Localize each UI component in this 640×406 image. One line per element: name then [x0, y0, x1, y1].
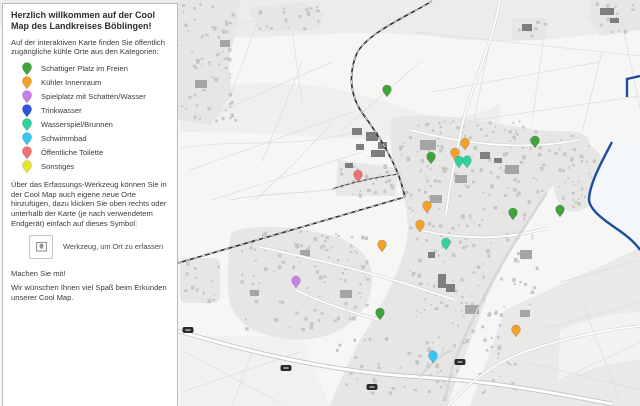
add-place-tool-button [29, 235, 53, 259]
legend-item-schwimmbad: Schwimmbad [11, 132, 169, 146]
legend-item-label: Trinkwasser [41, 106, 82, 115]
legend-item-label: Schwimmbad [41, 134, 87, 143]
legend-pin-icon-spielplatz [21, 90, 33, 104]
legend-item-label: Schattiger Platz im Freien [41, 64, 128, 73]
legend-item-label: Sonstiges [41, 162, 74, 171]
legend-pin-icon-wasserspiel [21, 118, 33, 132]
info-panel: Herzlich willkommen auf der Cool Map des… [2, 3, 178, 406]
legend-pin-icon-toilette [21, 146, 33, 160]
tool-button-label: Werkzeug, um Ort zu erfassen [63, 242, 163, 251]
legend-item-label: Kühler Innenraum [41, 78, 101, 87]
legend-item-toilette: Öffentliche Toilette [11, 146, 169, 160]
legend-pin-icon-schattiger-platz [21, 62, 33, 76]
legend-pin-icon-trinkwasser [21, 104, 33, 118]
legend-pin-icon-schwimmbad [21, 132, 33, 146]
legend-list: Schattiger Platz im FreienKühler Innenra… [11, 62, 169, 174]
panel-cta: Machen Sie mit! [11, 269, 169, 279]
legend-item-schattiger-platz: Schattiger Platz im Freien [11, 62, 169, 76]
app-window: Herzlich willkommen auf der Cool Map des… [0, 0, 640, 406]
legend-item-trinkwasser: Trinkwasser [11, 104, 169, 118]
panel-intro: Auf der interaktiven Karte finden Sie öf… [11, 38, 169, 57]
legend-item-kuehler-innenraum: Kühler Innenraum [11, 76, 169, 90]
legend-item-spielplatz: Spielplatz mit Schatten/Wasser [11, 90, 169, 104]
legend-pin-icon-sonstiges [21, 160, 33, 174]
add-place-tool-icon [35, 240, 48, 253]
legend-item-sonstiges: Sonstiges [11, 160, 169, 174]
panel-outro: Wir wünschen Ihnen viel Spaß beim Erkund… [11, 283, 169, 302]
legend-item-wasserspiel: Wasserspiel/Brunnen [11, 118, 169, 132]
legend-item-label: Spielplatz mit Schatten/Wasser [41, 92, 146, 101]
tool-row: Werkzeug, um Ort zu erfassen [29, 235, 169, 259]
panel-title: Herzlich willkommen auf der Cool Map des… [11, 10, 169, 33]
legend-item-label: Wasserspiel/Brunnen [41, 120, 113, 129]
legend-pin-icon-kuehler-innenraum [21, 76, 33, 90]
legend-item-label: Öffentliche Toilette [41, 148, 103, 157]
panel-tool-info: Über das Erfassungs-Werkzeug können Sie … [11, 180, 169, 229]
